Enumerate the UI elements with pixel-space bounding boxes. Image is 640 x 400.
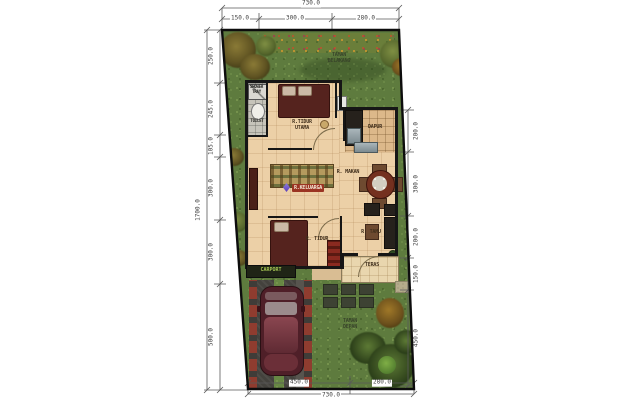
room-label-tidur: R. TIDUR [300,236,334,242]
dim-right-4: 450.0 [414,328,421,348]
dim-left-1: 245.0 [209,99,216,119]
dim-left-3: 300.0 [209,178,216,198]
dim-top-total: 730.0 [301,1,321,8]
room-label-dapur: DAPUR [361,124,389,130]
room-label-teras: TERAS [358,262,386,268]
dim-top-1: 300.0 [285,16,305,23]
room-label-carport: CARPORT [246,265,296,278]
dim-left-total: 1700.0 [196,198,203,222]
floor-plan-canvas: 730.0 150.0 300.0 280.0 450.0 280.0 730.… [0,0,640,400]
room-label-toilet: TOILET [244,119,270,124]
room-label-makan: R. MAKAN [328,169,368,175]
dim-right-3: 150.0 [414,264,421,284]
dim-left-2: 105.0 [209,136,216,156]
dim-right-2: 200.0 [414,227,421,247]
dim-bottom-0: 450.0 [289,380,309,387]
room-label-taman-belakang: TAMAN BELAKANG [316,52,362,65]
room-label-shower: SHOWER TRAY [248,85,265,95]
room-label-taman-depan: TAMAN DEPAN [332,318,368,331]
dim-left-4: 300.0 [209,242,216,262]
dim-left-0: 250.0 [209,46,216,66]
dim-left-5: 500.0 [209,327,216,347]
dim-right-0: 200.0 [414,121,421,141]
dim-top-0: 150.0 [230,16,250,23]
dim-top-2: 280.0 [356,16,376,23]
room-label-tidur-utama: R.TIDUR UTAMA [286,119,318,132]
dim-bottom-1: 280.0 [372,380,392,387]
room-label-keluarga: R.KELUARGA [292,184,324,192]
room-label-tamu: R. TAMU [354,229,388,235]
dim-bottom-total: 730.0 [321,393,341,400]
dim-right-1: 300.0 [414,174,421,194]
